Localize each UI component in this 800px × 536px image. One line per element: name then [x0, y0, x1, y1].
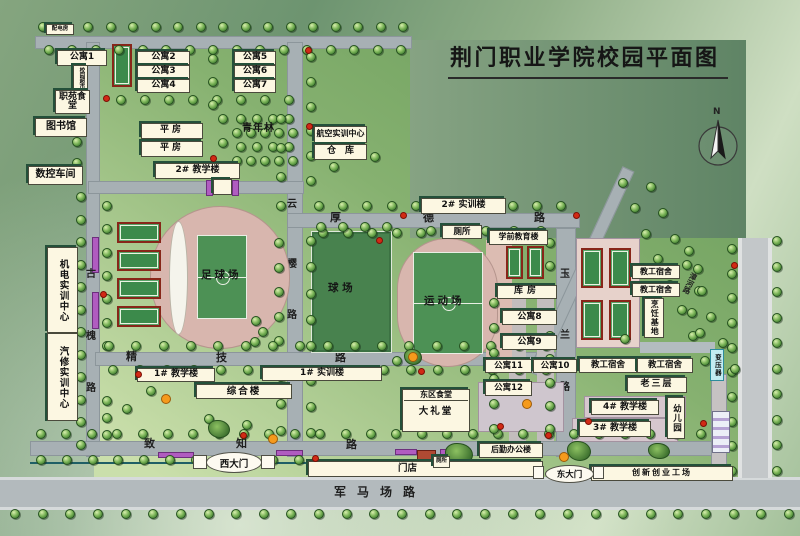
tree-icon [306, 176, 316, 186]
hydrant-dot-icon [135, 371, 142, 378]
road-label-char-zhizhi: 知 [236, 438, 247, 449]
tree-icon [349, 45, 359, 55]
tree-icon [563, 509, 573, 519]
tree-icon [258, 327, 268, 337]
tree-icon [693, 264, 703, 274]
building-2-training: 2# 实训楼 [421, 198, 506, 214]
building-staff-dorm-3: 教工宿舍 [579, 358, 637, 373]
flowerbed [232, 180, 239, 196]
compass-icon [694, 116, 742, 168]
area-label-court: 球 场 [328, 283, 353, 294]
flowerbed [158, 452, 194, 458]
building-staff-dorm-2: 教工宿舍 [632, 283, 680, 297]
road-label-char-houde: 厚 [330, 212, 341, 223]
lamp-dot-icon [161, 394, 171, 404]
tree-icon [241, 22, 251, 32]
building-gongyu-3: 公寓3 [137, 65, 190, 79]
tree-icon [684, 246, 694, 256]
tree-icon [696, 429, 706, 439]
tree-icon [236, 142, 246, 152]
tree-icon [729, 509, 739, 519]
tree-icon [276, 201, 286, 211]
east-gate-pillar-left [533, 466, 544, 479]
tree-icon [102, 271, 112, 281]
tree-icon [397, 509, 407, 519]
tree-icon [545, 401, 555, 411]
lamp-dot-icon [522, 399, 532, 409]
west-gate: 西大门 [206, 452, 262, 473]
tree-icon [369, 509, 379, 519]
court-east-1 [581, 248, 603, 288]
tree-icon [276, 399, 286, 409]
tree-icon [396, 45, 406, 55]
tree-icon [701, 509, 711, 519]
building-pingfang-1: 平房 [141, 123, 203, 139]
tree-icon [288, 156, 298, 166]
tree-icon [489, 399, 499, 409]
road-label-char-guhuai: 槐 [86, 332, 96, 342]
tree-icon [326, 45, 336, 55]
tree-icon [341, 429, 351, 439]
tree-icon [329, 162, 339, 172]
flowerbed [395, 449, 417, 455]
building-library: 图书馆 [35, 118, 87, 137]
building-toilet-north: 厕所 [442, 225, 482, 239]
page-title: 荆门职业学院校园平面图 [448, 40, 728, 79]
tree-icon [700, 356, 710, 366]
hydrant-dot-icon [418, 368, 425, 375]
tree-icon [259, 509, 269, 519]
tree-icon [382, 222, 392, 232]
tree-icon [308, 22, 318, 32]
road-label-char-houde: 路 [534, 212, 545, 223]
tree-icon [772, 440, 782, 450]
building-old-three-storey: 老三层 [627, 377, 687, 393]
tree-icon [772, 364, 782, 374]
building-transformer: 变压器 [710, 349, 724, 381]
lamp-dot-icon [268, 434, 278, 444]
tree-icon [164, 95, 174, 105]
road-label-char-jingji: 路 [335, 352, 346, 363]
tree-icon [727, 244, 737, 254]
tree-icon [72, 137, 82, 147]
building-warehouse: 仓 库 [314, 144, 367, 160]
building-gongyu-2: 公寓2 [137, 51, 190, 65]
tree-icon [376, 22, 386, 32]
hydrant-dot-icon [306, 123, 313, 130]
campus-map: 荆门职业学院校园平面图 N 足球场 球 场 运动场 青年林 配电房 公寓1 校园… [0, 0, 800, 536]
tree-icon [121, 509, 131, 519]
building-staff-dorm-4: 教工宿舍 [637, 358, 693, 373]
tree-icon [772, 236, 782, 246]
tree-icon [360, 222, 370, 232]
west-gate-pillar-right [261, 455, 275, 469]
tree-icon [772, 338, 782, 348]
tree-icon [387, 201, 397, 211]
tree-icon [102, 201, 112, 211]
building-east-canteen-complex: 东区食堂 大礼堂 [402, 389, 470, 432]
building-striped-dorm [712, 411, 730, 453]
tree-icon [116, 95, 126, 105]
tree-icon [87, 429, 97, 439]
tree-icon [535, 509, 545, 519]
tree-icon [370, 152, 380, 162]
tree-icon [416, 228, 426, 238]
hydrant-dot-icon [497, 423, 504, 430]
road-label-char-yulan: 玉 [560, 270, 570, 280]
road-label-char-junmachang: 路 [403, 486, 415, 498]
tree-icon [730, 364, 740, 374]
tree-icon [618, 178, 628, 188]
path-dorm-east [640, 342, 715, 353]
building-gongyu-5: 公寓5 [234, 51, 276, 65]
east-gate-pillar-right [593, 466, 604, 479]
tree-icon [288, 128, 298, 138]
road-label-char-junmachang: 马 [357, 486, 369, 498]
tree-icon [314, 201, 324, 211]
tree-icon [673, 509, 683, 519]
court-east-2 [609, 248, 631, 288]
tree-icon [83, 22, 93, 32]
tree-icon [290, 429, 300, 439]
tree-icon [314, 509, 324, 519]
tree-icon [772, 313, 782, 323]
tree-icon [411, 201, 421, 211]
road-label-char-yulan: 兰 [560, 331, 570, 341]
tree-icon [338, 222, 348, 232]
west-gate-pillar-left [193, 455, 207, 469]
building-campus-market: 校园超市 [73, 65, 88, 91]
tree-icon [176, 509, 186, 519]
road-label-char-zhizhi: 路 [346, 439, 357, 450]
tree-icon [353, 22, 363, 32]
tree-icon [76, 237, 86, 247]
tree-icon [44, 45, 54, 55]
tree-icon [38, 509, 48, 519]
tree-icon [61, 429, 71, 439]
tree-icon [62, 455, 72, 465]
tree-icon [460, 365, 470, 375]
tree-icon [373, 45, 383, 55]
hydrant-dot-icon [700, 420, 707, 427]
tree-icon [102, 396, 112, 406]
tree-icon [36, 455, 46, 465]
tree-icon [756, 509, 766, 519]
flowerbed [92, 292, 99, 329]
tree-icon [306, 341, 316, 351]
tree-icon [727, 343, 737, 353]
tree-icon [260, 156, 270, 166]
tree-icon [65, 509, 75, 519]
tree-icon [508, 201, 518, 211]
tree-icon [276, 172, 286, 182]
hydrant-dot-icon [545, 432, 552, 439]
building-gongyu-4: 公寓4 [137, 79, 190, 93]
court-west-3 [117, 278, 161, 299]
road-label-char-junmachang: 场 [380, 486, 392, 498]
tree-icon [508, 509, 518, 519]
tree-icon [208, 100, 218, 110]
east-gate: 东大门 [545, 465, 594, 483]
tree-icon [294, 455, 304, 465]
tree-icon [306, 102, 316, 112]
tree-icon [208, 54, 218, 64]
tree-icon [532, 201, 542, 211]
tree-icon [246, 156, 256, 166]
building-kindergarten: 幼儿园 [667, 397, 685, 439]
tree-icon [36, 429, 46, 439]
tree-icon [306, 77, 316, 87]
tree-icon [159, 341, 169, 351]
tree-icon [276, 143, 286, 153]
building-toilet-south: 厕所 [433, 456, 450, 468]
tree-icon [88, 455, 98, 465]
building-east-canteen-label: 东区食堂 [404, 390, 468, 401]
building-electromech-center: 机电实训中心 [47, 247, 78, 333]
tree-icon [392, 356, 402, 366]
hydrant-dot-icon [240, 432, 247, 439]
tree-icon [316, 222, 326, 232]
tree-icon [140, 95, 150, 105]
tree-icon [268, 341, 278, 351]
tree-icon [432, 341, 442, 351]
tree-icon [489, 298, 499, 308]
building-cooking-base: 烹饪基地 [644, 298, 664, 338]
building-staff-dorm-1: 教工宿舍 [632, 265, 680, 279]
building-cnc-workshop: 数控车间 [28, 166, 83, 185]
road-east-avenue [738, 238, 772, 478]
tree-icon [188, 95, 198, 105]
tree-icon [93, 509, 103, 519]
tree-icon [398, 22, 408, 32]
tree-icon [366, 429, 376, 439]
stadium-stand [169, 221, 188, 335]
building-storehouse: 库房 [497, 285, 557, 299]
tree-icon [274, 238, 284, 248]
building-aviation-training: 航空实训中心 [314, 126, 367, 143]
tree-icon [406, 365, 416, 375]
tree-icon [306, 289, 316, 299]
tree-icon [618, 509, 628, 519]
court-west-2 [117, 250, 161, 271]
hydrant-dot-icon [731, 262, 738, 269]
tree-icon [251, 316, 261, 326]
building-gongyu-9: 公寓9 [502, 335, 557, 350]
tree-icon [186, 341, 196, 351]
tree-icon [231, 509, 241, 519]
tree-icon [236, 95, 246, 105]
building-gongyu-7: 公寓7 [234, 79, 276, 93]
tree-icon [286, 22, 296, 32]
tree-icon [556, 201, 566, 211]
tree-icon [106, 22, 116, 32]
hydrant-dot-icon [573, 212, 580, 219]
tree-icon [242, 420, 252, 430]
flowerbed [206, 180, 213, 196]
tree-icon [706, 312, 716, 322]
tree-icon [146, 386, 156, 396]
building-pingfang-2: 平房 [141, 141, 203, 157]
building-shops-label: 门店 [398, 464, 417, 474]
tree-icon [165, 455, 175, 465]
building-1-training: 1# 实训楼 [262, 367, 382, 381]
tree-icon [76, 215, 86, 225]
tree-icon [772, 389, 782, 399]
tree-icon [452, 509, 462, 519]
tree-icon [323, 341, 333, 351]
building-gongyu-6: 公寓6 [234, 65, 276, 79]
tree-icon [772, 262, 782, 272]
tree-icon [350, 341, 360, 351]
court-preschool-1 [506, 246, 523, 279]
tree-icon [274, 287, 284, 297]
area-label-sports-ground: 运动场 [424, 296, 465, 307]
building-preschool-edu: 学前教育楼 [489, 230, 548, 245]
tree-icon [620, 334, 630, 344]
court-west-1 [117, 222, 161, 243]
tree-icon [286, 509, 296, 519]
road-south-of-2jxl [88, 181, 304, 194]
hydrant-dot-icon [103, 95, 110, 102]
building-great-hall-label: 大礼堂 [404, 407, 468, 417]
hydrant-dot-icon [210, 155, 217, 162]
tree-icon [263, 22, 273, 32]
tree-icon [727, 392, 737, 402]
bush-icon [648, 443, 670, 459]
building-innovation-works: 创新创业工场 [591, 466, 733, 481]
building-power-room: 配电房 [46, 24, 74, 35]
flowerbed [92, 237, 99, 273]
tree-icon [104, 341, 114, 351]
tree-icon [274, 156, 284, 166]
tree-icon [173, 22, 183, 32]
tree-icon [279, 45, 289, 55]
tree-icon [697, 286, 707, 296]
tree-icon [459, 341, 469, 351]
building-gongyu-12: 公寓12 [485, 381, 532, 396]
tree-icon [772, 415, 782, 425]
hydrant-dot-icon [376, 237, 383, 244]
tree-icon [274, 263, 284, 273]
tree-icon [772, 466, 782, 476]
tree-icon [218, 22, 228, 32]
court-west-4 [117, 306, 161, 327]
tree-icon [218, 138, 228, 148]
tree-icon [306, 315, 316, 325]
building-gongyu-1: 公寓1 [57, 50, 107, 66]
tree-icon [687, 308, 697, 318]
tree-icon [727, 318, 737, 328]
tree-icon [426, 226, 436, 236]
road-junmachang [0, 477, 800, 510]
road-zhizhi [30, 441, 718, 456]
lamp-dot-icon [408, 352, 418, 362]
building-2-teaching-entry [213, 179, 232, 195]
tree-icon [108, 365, 118, 375]
tree-icon [670, 234, 680, 244]
hydrant-dot-icon [312, 455, 319, 462]
area-label-football: 足球场 [201, 270, 242, 281]
road-label-char-guhuai: 路 [86, 384, 96, 394]
tree-icon [274, 128, 284, 138]
hydrant-dot-icon [585, 418, 592, 425]
tree-icon [128, 22, 138, 32]
hydrant-dot-icon [305, 47, 312, 54]
tree-icon [433, 365, 443, 375]
tree-icon [138, 429, 148, 439]
tree-icon [102, 430, 112, 440]
bush-icon [567, 441, 591, 461]
court-preschool-2 [527, 246, 544, 279]
tree-icon [276, 426, 286, 436]
tree-icon [250, 337, 260, 347]
tree-icon [392, 228, 402, 238]
tree-icon [718, 338, 728, 348]
tree-icon [232, 128, 242, 138]
road-label-char-jingji: 精 [126, 351, 137, 362]
tree-icon [331, 22, 341, 32]
tree-icon [260, 95, 270, 105]
building-gongyu-10: 公寓10 [533, 359, 577, 373]
tree-icon [591, 509, 601, 519]
tree-icon [306, 236, 316, 246]
building-auto-repair-center: 汽修实训中心 [47, 333, 78, 421]
building-gongyu-11: 公寓11 [485, 359, 532, 373]
tree-icon [252, 142, 262, 152]
tree-icon [569, 429, 579, 439]
road-label-char-yunying: 云 [287, 200, 297, 210]
tree-icon [122, 404, 132, 414]
tree-icon [208, 77, 218, 87]
building-gongyu-8: 公寓8 [502, 310, 557, 325]
road-label-char-zhizhi: 致 [144, 438, 155, 449]
road-label-char-guhuai: 古 [86, 270, 96, 280]
tree-icon [274, 312, 284, 322]
tree-icon [204, 509, 214, 519]
tree-icon [695, 328, 705, 338]
area-label-youth-forest: 青年林 [242, 124, 275, 134]
tree-icon [677, 305, 687, 315]
tree-icon [218, 114, 228, 124]
tree-icon [306, 402, 316, 412]
tree-icon [284, 95, 294, 105]
tree-icon [425, 509, 435, 519]
tree-icon [646, 182, 656, 192]
tree-icon [151, 22, 161, 32]
tree-icon [682, 260, 692, 270]
tree-icon [102, 413, 112, 423]
tree-icon [727, 269, 737, 279]
building-shops-strip [308, 461, 543, 477]
road-label-char-yunying: 路 [287, 311, 297, 321]
building-zhiyuan-canteen: 职苑食堂 [55, 90, 90, 114]
building-2-teaching: 2# 教学楼 [155, 163, 240, 179]
tree-icon [10, 509, 20, 519]
road-label-char-junmachang: 军 [334, 486, 346, 498]
tree-icon [76, 192, 86, 202]
tree-icon [646, 509, 656, 519]
tree-icon [148, 509, 158, 519]
tree-icon [342, 509, 352, 519]
court-east-3 [581, 300, 603, 340]
hydrant-dot-icon [400, 212, 407, 219]
tree-icon [784, 509, 794, 519]
bush-icon [208, 420, 230, 438]
lamp-dot-icon [559, 452, 569, 462]
tree-icon [102, 248, 112, 258]
tree-icon [658, 208, 668, 218]
tree-icon [163, 429, 173, 439]
